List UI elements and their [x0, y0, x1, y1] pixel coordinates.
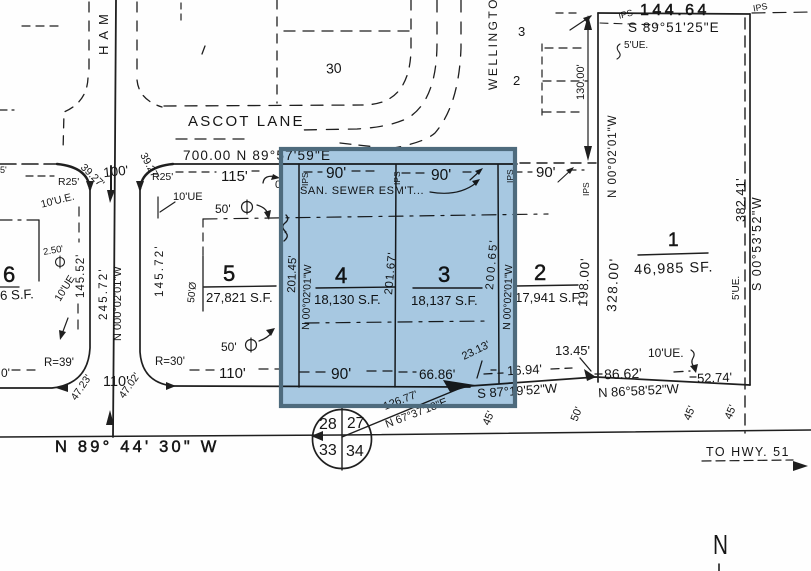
svg-text:IPS: IPS	[581, 182, 591, 196]
svg-text:145.52': 145.52'	[75, 254, 87, 298]
svg-text:198.00': 198.00'	[575, 257, 593, 307]
svg-text:2: 2	[534, 260, 546, 285]
svg-text:130.00': 130.00'	[575, 64, 587, 100]
svg-text:R=30': R=30'	[155, 356, 185, 368]
svg-text:144.64: 144.64	[640, 2, 710, 19]
svg-text:N 000°02'01"W: N 000°02'01"W	[112, 266, 124, 341]
svg-text:27,821 S.F.: 27,821 S.F.	[206, 290, 273, 305]
svg-text:1: 1	[668, 230, 679, 251]
svg-text:30: 30	[325, 60, 342, 77]
svg-text:50': 50'	[221, 340, 237, 354]
svg-text:0': 0'	[1, 366, 10, 380]
svg-text:382.41': 382.41'	[734, 178, 748, 222]
svg-text:2: 2	[513, 73, 520, 88]
svg-text:3: 3	[518, 24, 525, 39]
svg-text:N 89° 44' 30" W: N 89° 44' 30" W	[55, 438, 220, 456]
svg-text:ASCOT LANE: ASCOT LANE	[188, 113, 305, 130]
svg-text:S 89°51'25"E: S 89°51'25"E	[628, 20, 720, 35]
svg-text:33: 33	[319, 442, 337, 459]
svg-text:5'UE.: 5'UE.	[624, 40, 648, 51]
svg-text:328.00': 328.00'	[604, 257, 622, 312]
svg-text:5': 5'	[0, 165, 7, 175]
svg-text:115': 115'	[221, 168, 248, 185]
svg-text:N: N	[713, 529, 728, 560]
svg-text:S 00°53'52"W: S 00°53'52"W	[750, 196, 764, 291]
svg-text:17,941 S.F.: 17,941 S.F.	[515, 290, 582, 305]
svg-text:6 S.F.: 6 S.F.	[0, 286, 34, 303]
svg-text:10'UE: 10'UE	[173, 191, 203, 203]
svg-text:6: 6	[3, 262, 15, 287]
svg-text:34: 34	[346, 443, 364, 460]
svg-text:10'UE.: 10'UE.	[648, 346, 684, 360]
svg-text:50'Ø: 50'Ø	[186, 281, 199, 303]
svg-text:100': 100'	[102, 163, 129, 181]
svg-text:86.62': 86.62'	[604, 365, 642, 382]
svg-text:WELLINGTO: WELLINGTO	[486, 0, 500, 90]
svg-text:R25': R25'	[152, 171, 173, 183]
svg-text:245.72': 245.72'	[98, 267, 110, 320]
svg-text:50': 50'	[215, 202, 231, 216]
svg-text:28: 28	[319, 416, 337, 433]
svg-text:5'UE.: 5'UE.	[731, 276, 742, 300]
svg-text:N 00°02'01"W: N 00°02'01"W	[607, 114, 619, 198]
svg-text:46,985 SF.: 46,985 SF.	[634, 259, 714, 278]
svg-text:52.74': 52.74'	[697, 370, 733, 386]
svg-text:R=39': R=39'	[44, 357, 74, 369]
svg-text:R25': R25'	[58, 176, 79, 188]
svg-text:110': 110'	[219, 365, 246, 382]
svg-text:HAM: HAM	[96, 8, 111, 55]
svg-text:145.72': 145.72'	[154, 244, 166, 297]
svg-text:90': 90'	[536, 164, 556, 181]
svg-text:TO HWY. 51: TO HWY. 51	[706, 445, 790, 459]
svg-text:5: 5	[223, 261, 235, 286]
svg-text:13.45': 13.45'	[555, 343, 590, 358]
